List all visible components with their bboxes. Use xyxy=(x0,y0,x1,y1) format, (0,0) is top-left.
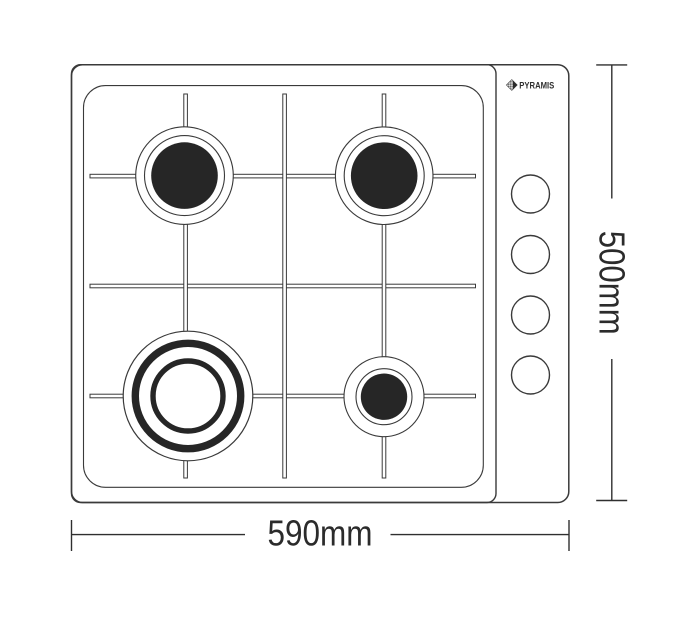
svg-text:590mm: 590mm xyxy=(268,513,373,554)
svg-text:PYRAMIS: PYRAMIS xyxy=(519,81,554,91)
svg-text:500mm: 500mm xyxy=(592,231,633,335)
